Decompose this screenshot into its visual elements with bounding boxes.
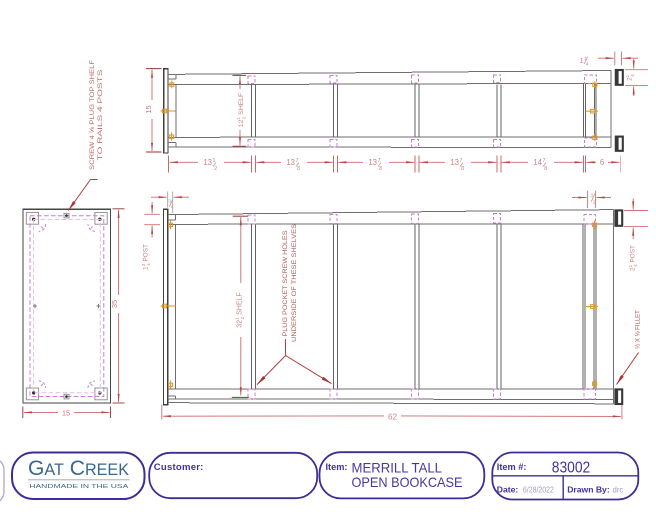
svg-text:7: 7 bbox=[460, 158, 463, 164]
svg-text:½ X ⅛ FILLET: ½ X ⅛ FILLET bbox=[635, 310, 642, 349]
svg-text:MERRILL TALL: MERRILL TALL bbox=[352, 460, 443, 475]
svg-text:Drawn By:: Drawn By: bbox=[567, 485, 610, 495]
svg-text:7: 7 bbox=[296, 158, 299, 164]
svg-text:13: 13 bbox=[203, 158, 212, 167]
svg-text:83002: 83002 bbox=[552, 460, 591, 477]
svg-text:15: 15 bbox=[144, 105, 153, 113]
svg-text:6/28/2022: 6/28/2022 bbox=[523, 486, 554, 495]
svg-text:2: 2 bbox=[214, 166, 217, 172]
svg-text:14: 14 bbox=[533, 158, 542, 167]
svg-text:13: 13 bbox=[368, 158, 377, 167]
svg-text:Date:: Date: bbox=[497, 485, 519, 495]
svg-text:13: 13 bbox=[450, 158, 459, 167]
svg-text:13: 13 bbox=[286, 158, 295, 167]
svg-text:2: 2 bbox=[593, 199, 596, 205]
svg-text:1: 1 bbox=[213, 158, 216, 164]
svg-text:35: 35 bbox=[110, 300, 119, 308]
svg-text:Item:: Item: bbox=[326, 462, 348, 472]
svg-text:HANDMADE IN THE USA: HANDMADE IN THE USA bbox=[29, 484, 128, 490]
svg-text:4: 4 bbox=[171, 204, 174, 210]
svg-text:7: 7 bbox=[378, 158, 381, 164]
svg-text:UNDERSIDE OF THESE SHELVES: UNDERSIDE OF THESE SHELVES bbox=[291, 224, 298, 342]
svg-text:SCREW 4 ⅝ PLUG TOP SHELF: SCREW 4 ⅝ PLUG TOP SHELF bbox=[89, 60, 96, 170]
svg-text:Item #:: Item #: bbox=[497, 462, 527, 472]
svg-text:OPEN BOOKCASE: OPEN BOOKCASE bbox=[352, 475, 463, 490]
svg-text:8: 8 bbox=[544, 166, 547, 172]
svg-text:TO RAILS 4 POSTS: TO RAILS 4 POSTS bbox=[97, 70, 104, 161]
svg-text:Customer:: Customer: bbox=[154, 462, 204, 473]
svg-text:drc: drc bbox=[613, 486, 624, 495]
svg-text:15: 15 bbox=[62, 409, 70, 418]
svg-text:4: 4 bbox=[586, 61, 589, 67]
svg-text:7: 7 bbox=[543, 158, 546, 164]
svg-text:6: 6 bbox=[600, 158, 604, 167]
svg-text:8: 8 bbox=[461, 166, 464, 172]
svg-text:8: 8 bbox=[297, 166, 300, 172]
svg-text:8: 8 bbox=[379, 166, 382, 172]
svg-text:PLUG POCKET SCREW HOLES: PLUG POCKET SCREW HOLES bbox=[282, 231, 289, 337]
svg-text:62: 62 bbox=[388, 412, 398, 422]
